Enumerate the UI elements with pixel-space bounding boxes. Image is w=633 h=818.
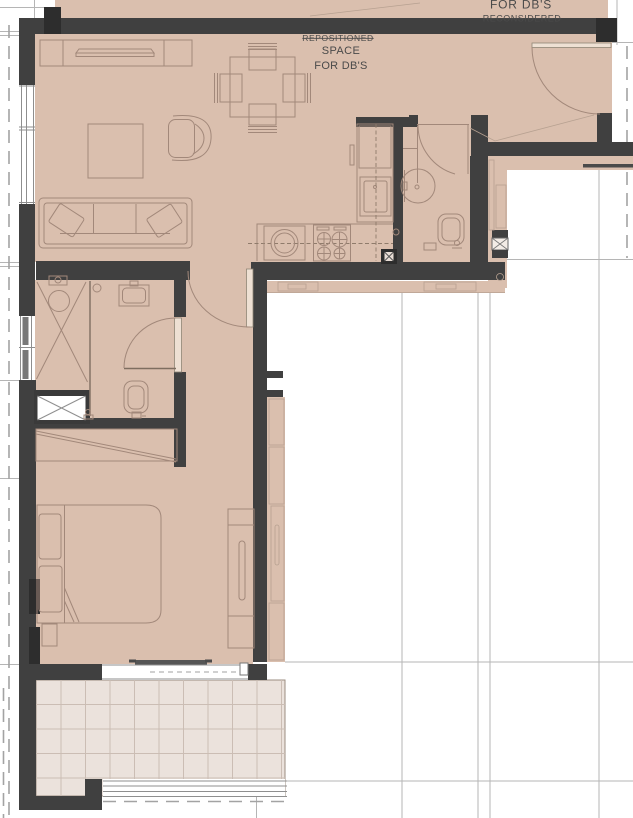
svg-text:RECONSIDERED: RECONSIDERED: [483, 14, 562, 24]
svg-text:FOR DB'S: FOR DB'S: [314, 60, 367, 72]
svg-text:REPOSITIONED: REPOSITIONED: [302, 33, 373, 43]
svg-text:FOR DB'S: FOR DB'S: [490, 0, 552, 12]
svg-text:SPACE: SPACE: [322, 45, 360, 57]
